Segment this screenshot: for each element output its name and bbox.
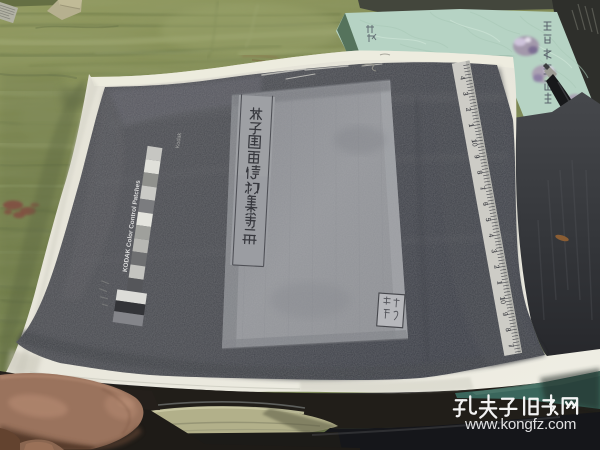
svg-text:10: 10	[470, 138, 478, 147]
svg-text:10: 10	[498, 296, 506, 305]
svg-text:www.kongfz.com: www.kongfz.com	[464, 416, 576, 433]
